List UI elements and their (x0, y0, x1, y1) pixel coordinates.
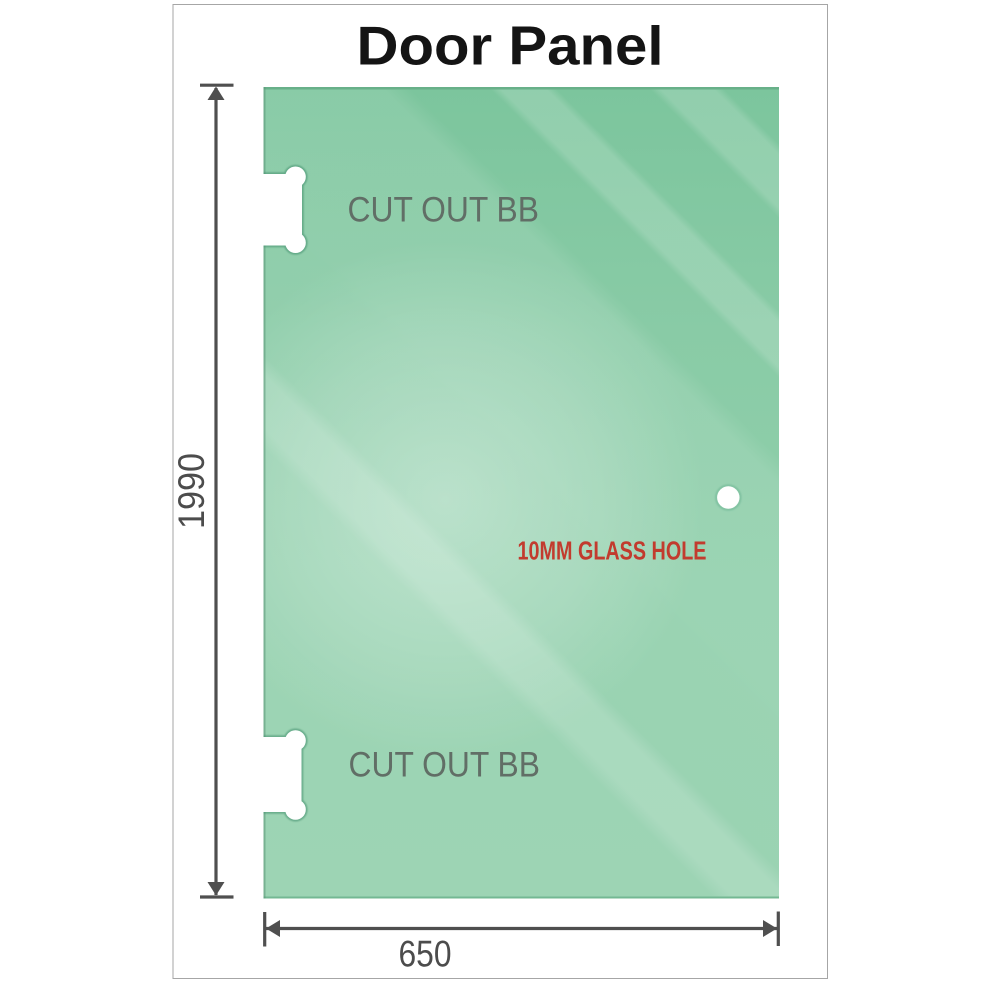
svg-text:CUT OUT BB: CUT OUT BB (348, 190, 540, 230)
svg-text:1990: 1990 (171, 453, 212, 529)
svg-text:650: 650 (399, 933, 452, 975)
svg-text:Door Panel: Door Panel (357, 15, 664, 77)
svg-text:10MM GLASS HOLE: 10MM GLASS HOLE (518, 536, 707, 566)
svg-text:CUT OUT BB: CUT OUT BB (349, 745, 541, 785)
